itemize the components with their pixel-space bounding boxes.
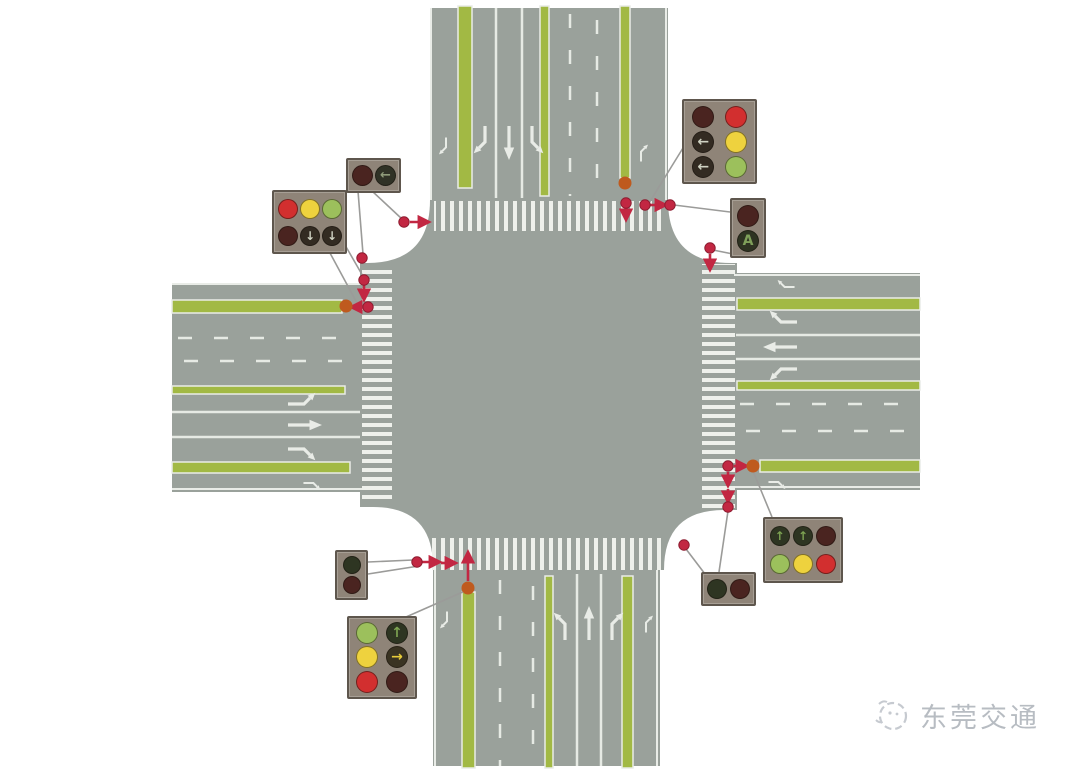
signal-box-topright-vehicle-light-5 <box>725 156 747 178</box>
signal-box-bottomright-vehicle-light-4 <box>793 554 813 574</box>
signal-box-topleft-pedestrian-light-0 <box>352 165 373 186</box>
signal-box-bottomright-pedestrian-light-1 <box>730 579 750 599</box>
signal-box-topright-vehicle: ←← <box>682 99 757 184</box>
signal-box-topright-vehicle-light-4: ← <box>692 156 714 178</box>
signal-box-bottomleft-pedestrian-light-1 <box>343 576 361 594</box>
signal-box-bottomleft-vehicle-light-4 <box>356 671 378 693</box>
signal-box-bottomright-vehicle-light-0: ↑ <box>770 526 790 546</box>
signal-box-topleft-vehicle-light-5: ↓ <box>322 226 342 246</box>
signal-boxes-layer: ←↓↓←←A↑→↑↑ <box>0 0 1080 773</box>
signal-box-bottomright-vehicle-light-2 <box>816 526 836 546</box>
signal-box-bottomright-pedestrian <box>701 572 756 606</box>
signal-box-bottomleft-vehicle-light-2 <box>356 646 378 668</box>
signal-box-topleft-pedestrian: ← <box>346 158 401 193</box>
signal-box-topright-pedestrian-light-1: A <box>737 230 759 252</box>
signal-box-bottomleft-vehicle-light-3: → <box>386 646 408 668</box>
signal-box-bottomright-pedestrian-light-0 <box>707 579 727 599</box>
signal-box-topleft-vehicle-light-3 <box>278 226 298 246</box>
signal-box-topright-vehicle-light-2: ← <box>692 131 714 153</box>
signal-box-topleft-vehicle-light-4: ↓ <box>300 226 320 246</box>
signal-box-topleft-vehicle-light-0 <box>278 199 298 219</box>
signal-box-topright-pedestrian: A <box>730 198 766 258</box>
signal-box-topright-vehicle-light-1 <box>725 106 747 128</box>
signal-box-bottomleft-pedestrian <box>335 550 368 600</box>
signal-box-bottomleft-vehicle-light-5 <box>386 671 408 693</box>
signal-box-bottomleft-pedestrian-light-0 <box>343 556 361 574</box>
signal-box-topright-pedestrian-light-0 <box>737 205 759 227</box>
signal-box-topleft-pedestrian-light-1: ← <box>375 165 396 186</box>
signal-box-topleft-vehicle-light-1 <box>300 199 320 219</box>
signal-box-topleft-vehicle: ↓↓ <box>272 190 347 254</box>
signal-box-bottomright-vehicle-light-5 <box>816 554 836 574</box>
signal-box-bottomleft-vehicle: ↑→ <box>347 616 417 699</box>
watermark: 东莞交通 <box>872 694 1040 736</box>
signal-box-bottomright-vehicle: ↑↑ <box>763 517 843 583</box>
intersection-diagram: ←↓↓←←A↑→↑↑ 东莞交通 <box>0 0 1080 773</box>
signal-box-topright-vehicle-light-0 <box>692 106 714 128</box>
signal-box-bottomright-vehicle-light-3 <box>770 554 790 574</box>
signal-box-bottomleft-vehicle-light-0 <box>356 622 378 644</box>
signal-box-topleft-vehicle-light-2 <box>322 199 342 219</box>
signal-box-topright-vehicle-light-3 <box>725 131 747 153</box>
signal-box-bottomright-vehicle-light-1: ↑ <box>793 526 813 546</box>
watermark-text: 东莞交通 <box>920 696 1040 735</box>
signal-box-bottomleft-vehicle-light-1: ↑ <box>386 622 408 644</box>
watermark-logo-icon <box>872 694 912 736</box>
